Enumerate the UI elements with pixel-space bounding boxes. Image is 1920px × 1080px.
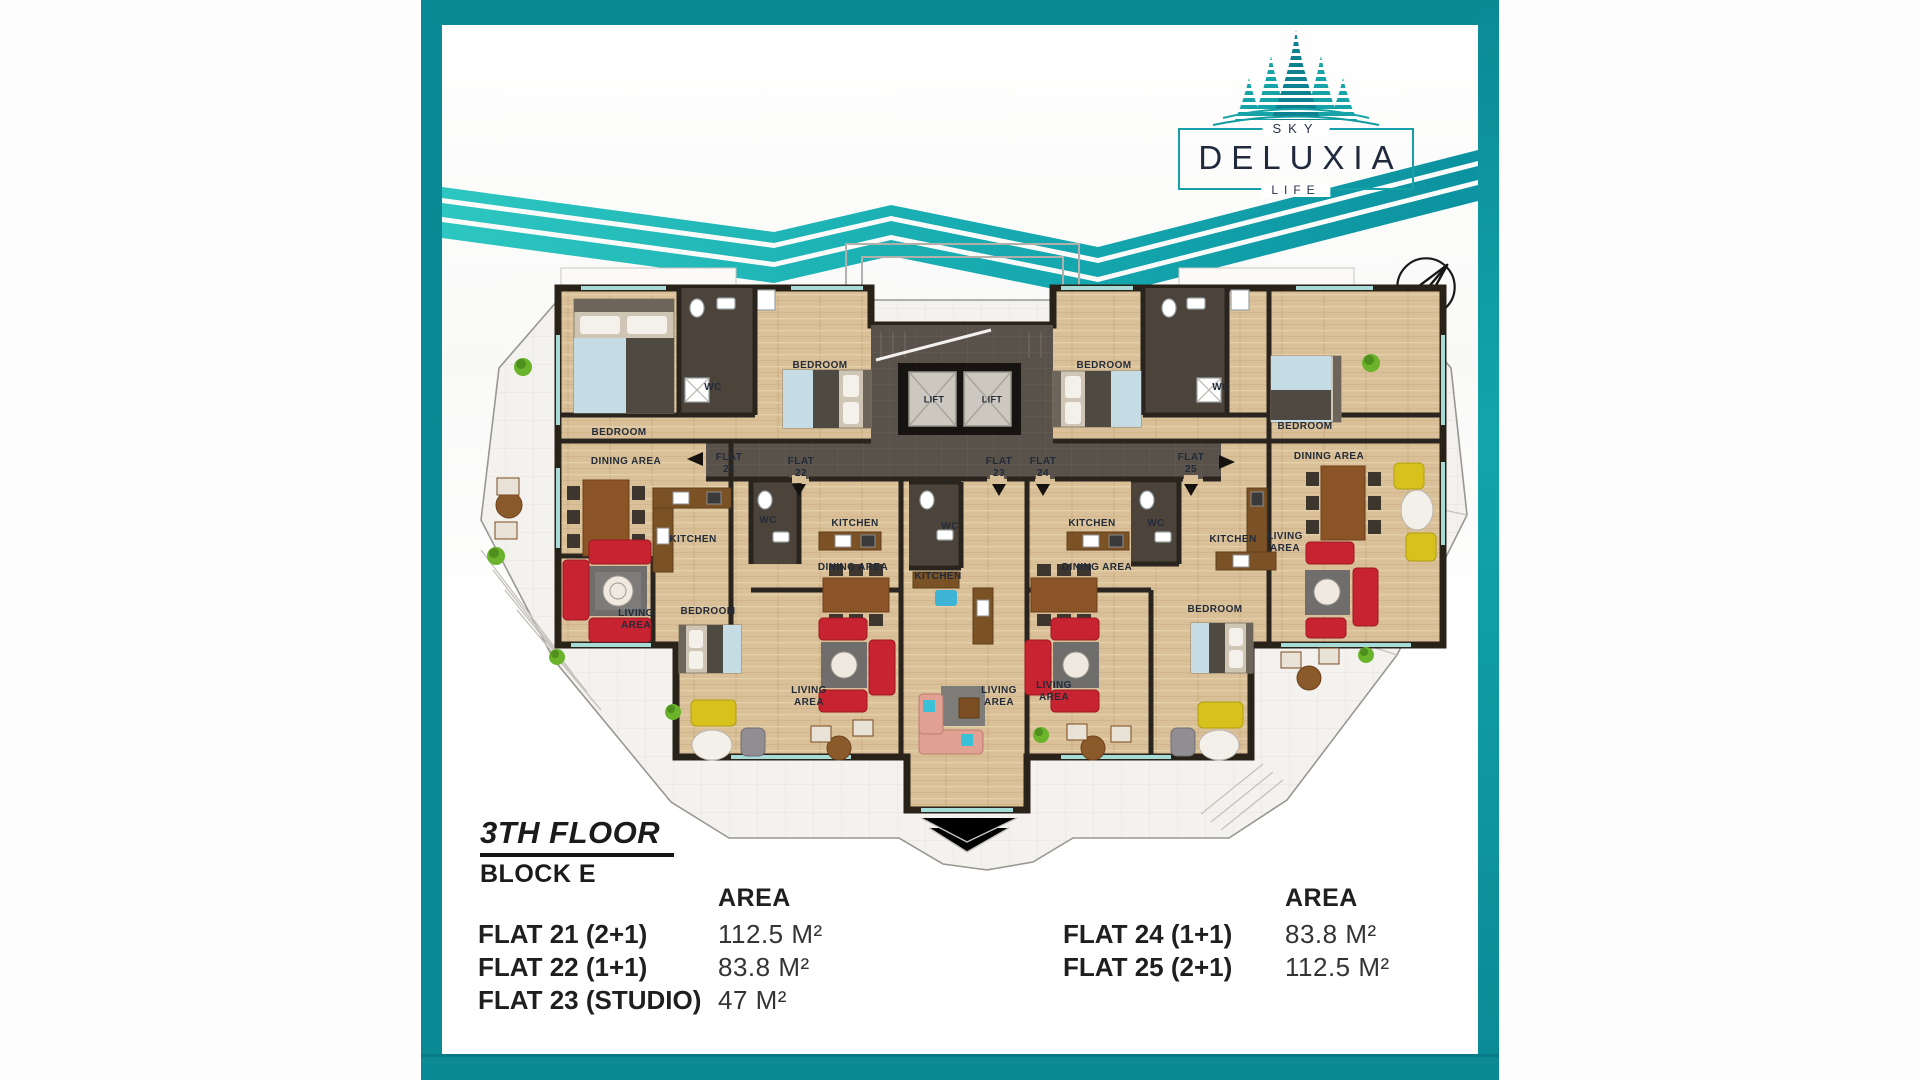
area-row: FLAT 22 (1+1)83.8 M²: [478, 951, 823, 984]
bed: [679, 625, 741, 673]
brochure-page: SKY DELUXIA LIFE: [421, 0, 1499, 1080]
floor-info: 3TH FLOOR BLOCK E: [480, 815, 674, 889]
area-table-right: AREA FLAT 24 (1+1)83.8 M²FLAT 25 (2+1)11…: [1063, 884, 1390, 984]
flat-label: FLAT 24 (1+1): [1063, 918, 1285, 951]
flat-area-value: 83.8 M²: [1285, 918, 1377, 951]
area-row: FLAT 25 (2+1)112.5 M²: [1063, 951, 1390, 984]
dining-set: [1306, 466, 1381, 540]
flat-label: FLAT 22 (1+1): [478, 951, 718, 984]
canvas: SKY DELUXIA LIFE: [0, 0, 1920, 1080]
area-table-left: AREA FLAT 21 (2+1)112.5 M²FLAT 22 (1+1)8…: [478, 884, 823, 1017]
flat-label: FLAT 23 (STUDIO): [478, 984, 718, 1017]
flat-area-value: 112.5 M²: [1285, 951, 1390, 984]
dining-set: [823, 564, 889, 626]
bed: [574, 299, 674, 413]
flat-label: FLAT 25 (2+1): [1063, 951, 1285, 984]
bed: [1053, 371, 1141, 427]
corridor: [706, 441, 1221, 479]
lift-block: [898, 363, 1021, 435]
bed: [783, 370, 871, 428]
flat-area-value: 83.8 M²: [718, 951, 810, 984]
bed: [1271, 356, 1341, 422]
floor-title: 3TH FLOOR: [480, 815, 674, 857]
area-header: AREA: [1285, 884, 1390, 913]
area-row: FLAT 21 (2+1)112.5 M²: [478, 918, 823, 951]
flat-label: FLAT 21 (2+1): [478, 918, 718, 951]
area-row: FLAT 24 (1+1)83.8 M²: [1063, 918, 1390, 951]
area-row: FLAT 23 (STUDIO)47 M²: [478, 984, 823, 1017]
flat-area-value: 47 M²: [718, 984, 787, 1017]
area-header: AREA: [718, 884, 823, 913]
flat-area-value: 112.5 M²: [718, 918, 823, 951]
dining-set: [1031, 564, 1097, 626]
bed: [1191, 623, 1253, 673]
